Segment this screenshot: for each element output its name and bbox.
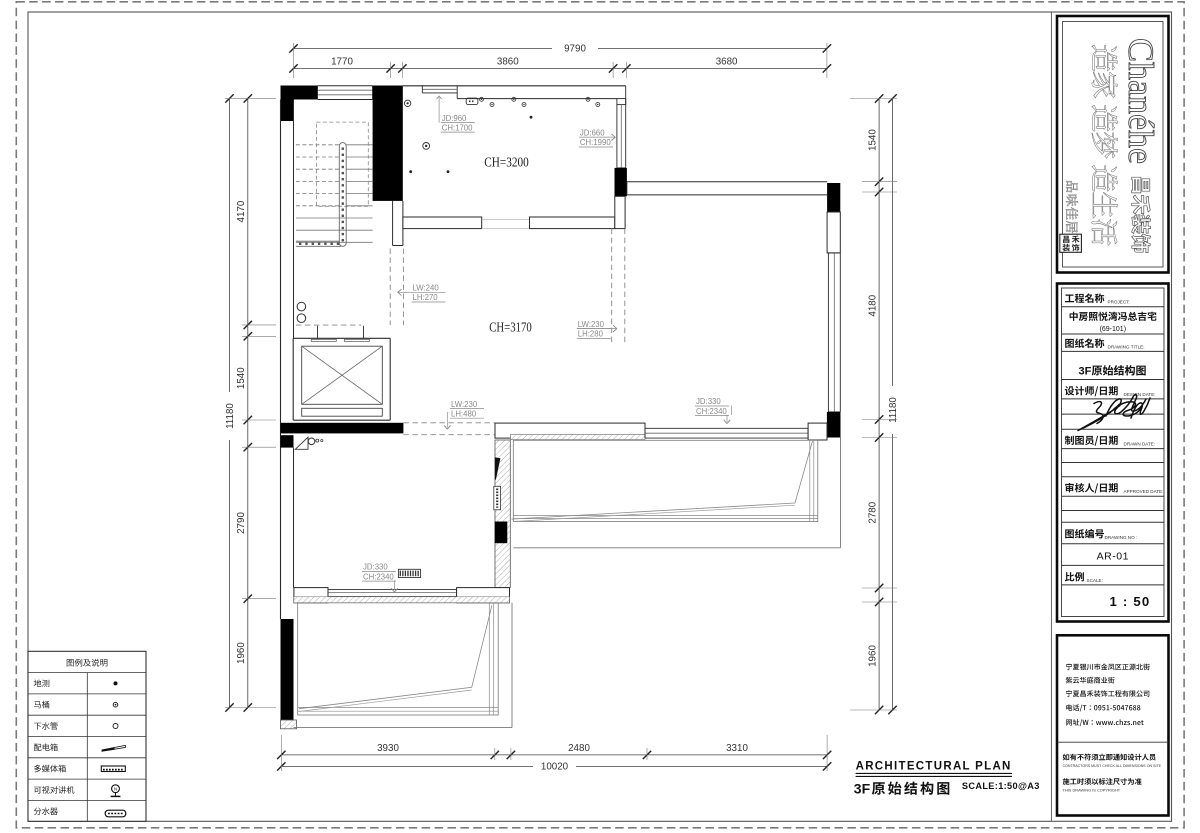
- svg-text:JD:330: JD:330: [696, 397, 721, 406]
- svg-text:3F: 3F: [1079, 366, 1092, 378]
- svg-text:3680: 3680: [716, 57, 738, 68]
- svg-text:10020: 10020: [541, 762, 569, 773]
- svg-text:JD:660: JD:660: [580, 128, 605, 137]
- svg-text:LW:230: LW:230: [578, 320, 605, 329]
- svg-text:ARCHITECTURAL PLAN: ARCHITECTURAL PLAN: [856, 760, 1012, 772]
- svg-text:2780: 2780: [868, 501, 879, 523]
- svg-text:DRAWING TITLE:: DRAWING TITLE:: [1108, 345, 1145, 350]
- svg-text:1960: 1960: [236, 642, 247, 664]
- svg-text:LW:230: LW:230: [451, 400, 478, 409]
- svg-text:CH:2340: CH:2340: [363, 572, 394, 581]
- svg-text:9790: 9790: [564, 44, 586, 55]
- svg-text:DESIGN DATE:: DESIGN DATE:: [1124, 392, 1156, 397]
- svg-text:2790: 2790: [236, 512, 247, 534]
- svg-text:LH:270: LH:270: [413, 293, 439, 302]
- svg-text:2480: 2480: [568, 743, 590, 754]
- svg-text:LH:280: LH:280: [578, 330, 604, 339]
- svg-text:DRAWN DATE:: DRAWN DATE:: [1124, 442, 1156, 447]
- svg-text:THIS DRAWING IS COPYRIGHT: THIS DRAWING IS COPYRIGHT: [1063, 787, 1121, 792]
- svg-text:1540: 1540: [236, 367, 247, 389]
- svg-text:CH:1990: CH:1990: [580, 138, 611, 147]
- svg-text:JD:960: JD:960: [442, 114, 467, 123]
- svg-text:1540: 1540: [868, 129, 879, 151]
- svg-text:SCALE:: SCALE:: [1087, 578, 1103, 583]
- svg-text:3860: 3860: [497, 57, 519, 68]
- svg-text:N: N: [114, 786, 117, 791]
- svg-text:4170: 4170: [236, 200, 247, 222]
- svg-text:LH:480: LH:480: [451, 409, 477, 418]
- svg-text:CH:1700: CH:1700: [442, 123, 473, 132]
- svg-text:CH=3170: CH=3170: [489, 321, 532, 336]
- svg-text:11180: 11180: [888, 397, 899, 423]
- svg-text:SCALE:1:50@A3: SCALE:1:50@A3: [962, 781, 1040, 791]
- svg-text:LW:240: LW:240: [413, 284, 440, 293]
- svg-text:1960: 1960: [868, 645, 879, 667]
- svg-text:DRAWING NO :: DRAWING NO :: [1105, 535, 1138, 540]
- svg-text:3F: 3F: [854, 781, 871, 797]
- svg-text:1770: 1770: [331, 57, 353, 68]
- svg-text:AR-01: AR-01: [1097, 551, 1129, 563]
- svg-text:PROJECT:: PROJECT:: [1108, 300, 1130, 305]
- svg-text:11180: 11180: [225, 403, 236, 429]
- svg-text:(69-101): (69-101): [1100, 326, 1126, 333]
- svg-text:Chanéhe: Chanéhe: [1121, 38, 1161, 164]
- svg-text:CH:2340: CH:2340: [696, 407, 727, 416]
- svg-text:APPROVED DATE:: APPROVED DATE:: [1124, 489, 1164, 494]
- svg-text:4180: 4180: [868, 294, 879, 316]
- svg-text:CH=3200: CH=3200: [484, 156, 529, 171]
- svg-text:3310: 3310: [726, 743, 748, 754]
- svg-text:3930: 3930: [377, 743, 399, 754]
- svg-text:1 : 50: 1 : 50: [1110, 594, 1151, 609]
- svg-text:CONTRACTORS MUST CHECK ALL DIM: CONTRACTORS MUST CHECK ALL DIMENSIONS ON…: [1063, 764, 1162, 768]
- svg-text:JD:330: JD:330: [363, 563, 388, 572]
